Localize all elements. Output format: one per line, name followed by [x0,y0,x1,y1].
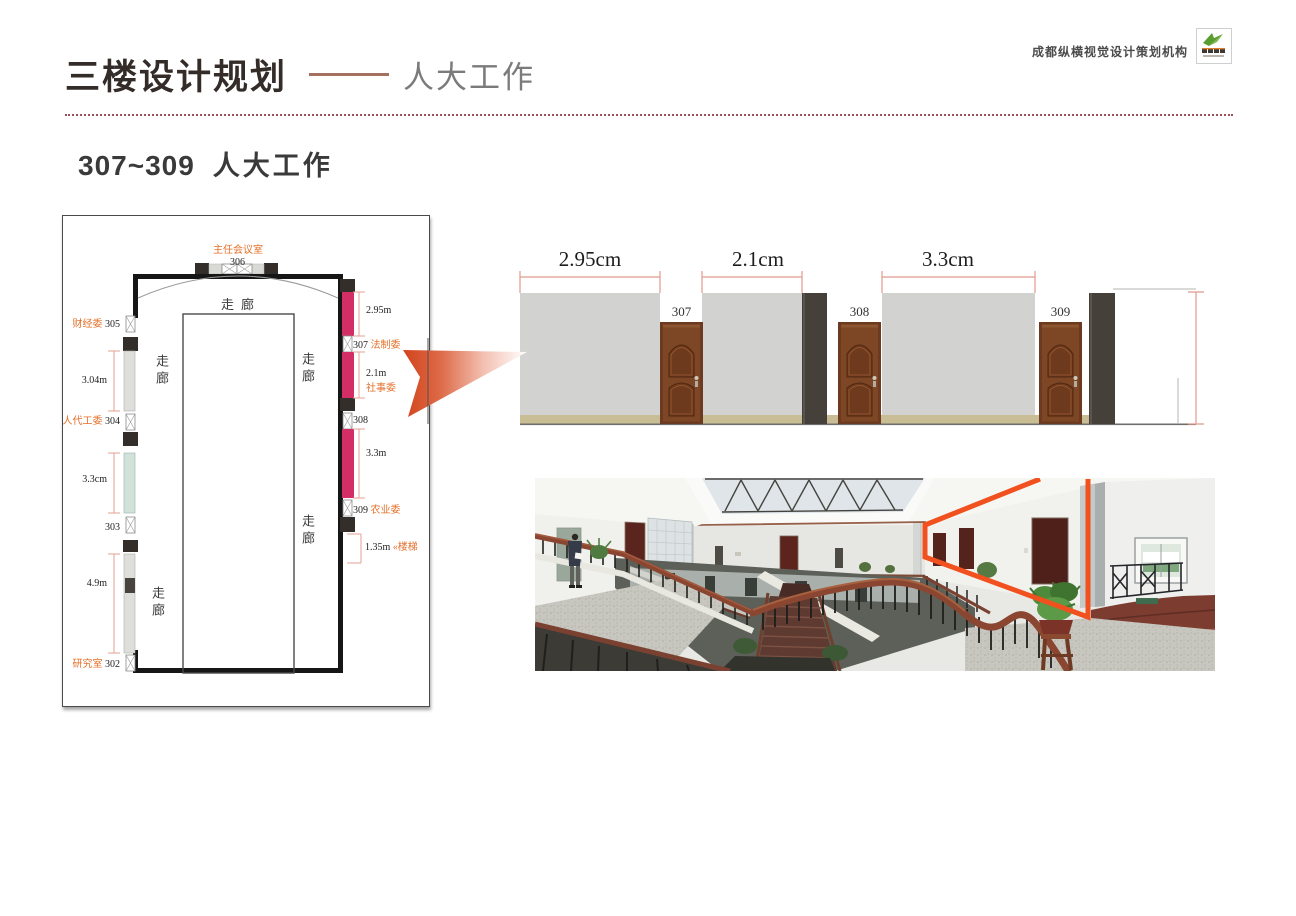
room-303-number: 303 [60,523,120,533]
room-305-label: 财经委 305 [40,320,120,330]
callout-arrow [398,338,530,429]
corridor-label-top: 走廊 [221,298,261,311]
dim-1-35m-stairs: 1.35m «楼梯 [365,543,418,553]
room-302-label: 研究室 302 [30,660,120,670]
dim-2-95m: 2.95m [366,306,391,316]
elevation-door-309: 309 [1039,304,1082,320]
room-309-name: 农业委 [371,505,401,516]
title-dash-line [309,73,389,76]
section-title: 人大工作 [213,144,333,183]
corridor-label-right-upper: 走廊 [301,352,314,386]
room-305-number: 305 [105,319,120,330]
slide-page: 三楼设计规划 人大工作 成都纵横视觉设计策划机构 307~309 人大工作 [0,0,1296,916]
room-304-number: 304 [105,416,120,427]
room-304-label: 人代工委 304 [30,417,120,427]
room-306-number: 306 [230,258,245,268]
label-social-affairs: 社事委 [366,384,396,394]
room-307-label: 307 法制委 [353,341,401,351]
agency-brand: 成都纵横视觉设计策划机构 [1032,28,1232,64]
dim-3-3cm: 3.3cm [47,475,107,485]
room-307-name: 法制委 [371,340,401,351]
room-308-number: 308 [353,416,368,426]
section-heading: 307~309 人大工作 [78,144,333,183]
dotted-divider [65,114,1233,116]
elevation-panel: 2.95cm 2.1cm 3.3cm 307 308 309 [515,245,1215,435]
dim-3-04m: 3.04m [47,376,107,386]
atrium-photo [535,478,1215,671]
corridor-label-right-lower: 走廊 [301,514,314,548]
floor-plan-drawing [63,216,429,706]
room-309-number: 309 [353,505,368,516]
corridor-label-left-lower: 走廊 [151,586,164,620]
elevation-door-307: 307 [660,304,703,320]
elevation-drawing [515,245,1215,435]
room-309-label: 309 农业委 [353,506,401,516]
elevation-door-308: 308 [838,304,881,320]
room-305-name: 财经委 [73,319,103,330]
page-header: 三楼设计规划 人大工作 [65,48,535,100]
dim-4-9m: 4.9m [47,579,107,589]
agency-logo-icon [1196,28,1232,64]
room-302-number: 302 [105,659,120,670]
page-title-suffix: 人大工作 [403,52,535,97]
corridor-label-left-upper: 走廊 [155,354,168,388]
dim-2-1m: 2.1m [366,369,386,379]
room-304-name: 人代工委 [63,416,103,427]
page-title: 三楼设计规划 [65,49,287,100]
room-307-number: 307 [353,340,368,351]
section-room-range: 307~309 [78,150,195,182]
elevation-dim-21: 2.1cm [732,247,784,272]
room-302-name: 研究室 [73,659,103,670]
agency-name: 成都纵横视觉设计策划机构 [1032,43,1188,60]
elevation-dim-33: 3.3cm [922,247,974,272]
dim-1-35m: 1.35m [365,542,390,553]
label-stairs: «楼梯 [393,542,418,553]
elevation-dim-295: 2.95cm [559,247,621,272]
floor-plan-panel: 主任会议室 306 走廊 走廊 走廊 走廊 走廊 财经委 305 3.04m 人… [62,215,430,707]
dim-3-3m: 3.3m [366,449,386,459]
room-306-name: 主任会议室 [213,246,263,256]
